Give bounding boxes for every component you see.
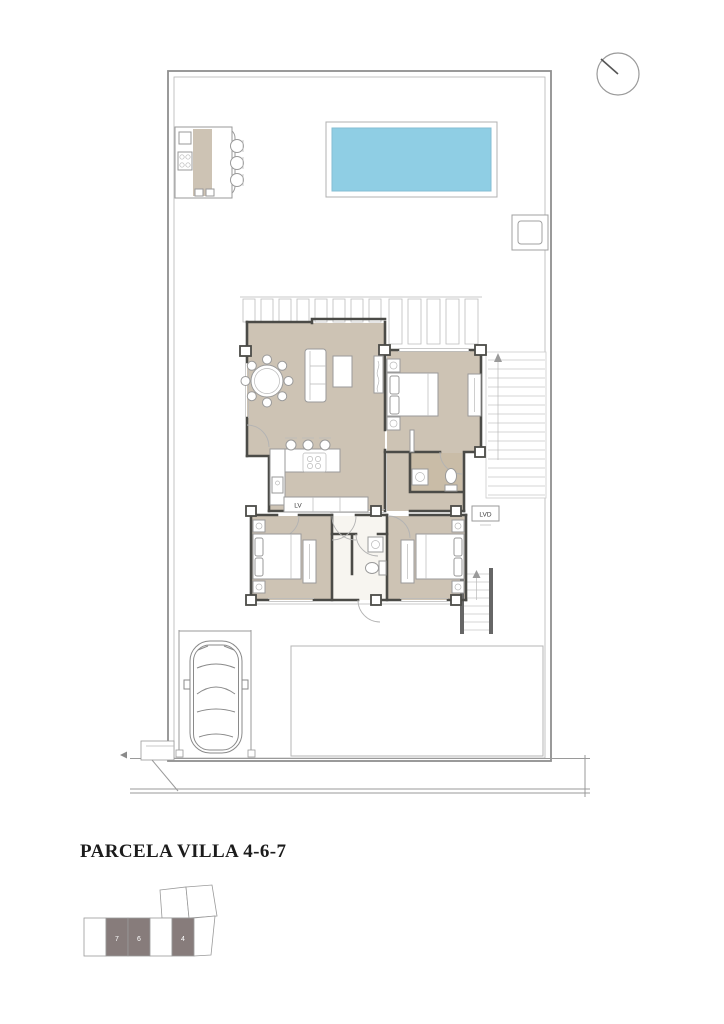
outdoor-sink-icon [179,132,191,144]
svg-text:4: 4 [181,936,185,943]
coffee-table [333,356,352,387]
dining-table [241,355,293,407]
toilet-icon [366,561,387,575]
keyplan: 7 6 4 [84,885,217,956]
floor-plan-page: LV LVD 7 6 4 PARCELA VILLA 4-6-7 [0,0,724,1024]
stairs-main [486,352,546,498]
driveway-entrance [141,741,178,791]
dishwasher-label: LV [294,503,302,510]
bar-stools [285,438,331,450]
nightstand [452,581,464,593]
street-arrow-icon [120,752,127,759]
car-icon [184,641,248,753]
washbasin-icon [368,537,383,552]
ac-unit [512,215,548,250]
door-leaf [410,430,414,452]
tv-unit [374,356,383,393]
sink-icon [272,477,283,493]
car-mirror-left [184,680,190,689]
toilet-icon [445,469,457,492]
hob-icon [178,152,192,170]
outdoor-kitchen [175,127,244,198]
svg-text:6: 6 [137,936,141,943]
nightstand [387,359,400,372]
laundry-label: LVD [479,512,491,519]
sofa [305,349,326,402]
north-compass-icon [597,53,639,95]
outdoor-chairs [231,140,244,187]
parking-bay [176,630,255,757]
nightstand [387,417,400,430]
page-title: PARCELA VILLA 4-6-7 [80,841,286,863]
nightstand [452,520,464,532]
nightstand [253,520,265,532]
bathroom2-floor [332,516,387,600]
site-plan-drawing: LV LVD 7 6 4 [0,0,724,1024]
svg-text:7: 7 [115,936,119,943]
washbasin-icon [412,469,428,485]
basement-outline [291,646,543,756]
car-mirror-right [242,680,248,689]
nightstand [253,581,265,593]
pool [326,122,497,197]
